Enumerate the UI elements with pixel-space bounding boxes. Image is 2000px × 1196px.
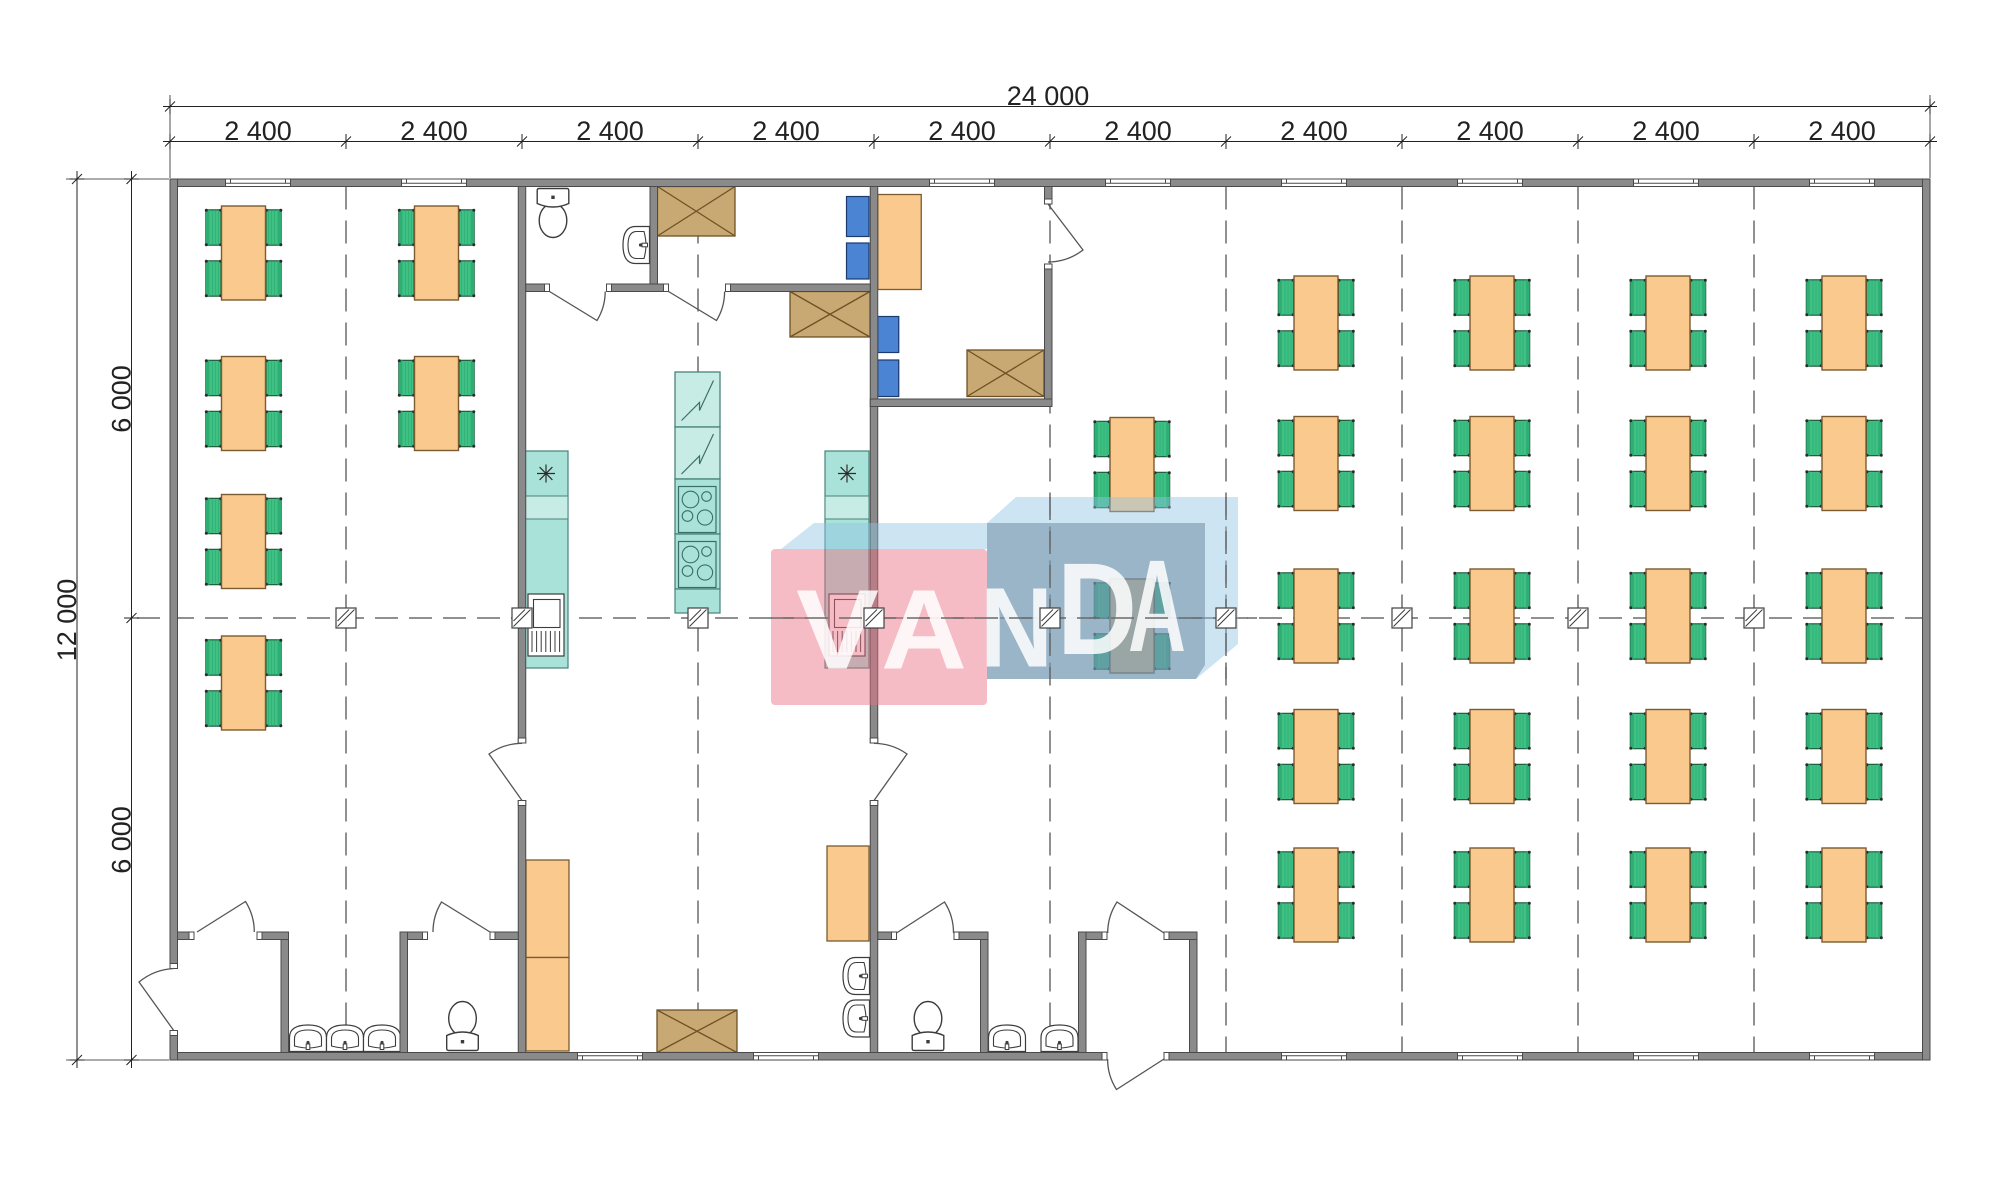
- svg-text:6 000: 6 000: [107, 806, 137, 874]
- svg-text:2 400: 2 400: [1280, 116, 1348, 146]
- svg-text:2 400: 2 400: [1104, 116, 1172, 146]
- svg-text:2 400: 2 400: [1808, 116, 1876, 146]
- svg-text:2 400: 2 400: [1632, 116, 1700, 146]
- svg-text:2 400: 2 400: [752, 116, 820, 146]
- svg-text:12 000: 12 000: [52, 579, 82, 662]
- svg-text:2 400: 2 400: [1456, 116, 1524, 146]
- svg-text:2 400: 2 400: [224, 116, 292, 146]
- svg-text:6 000: 6 000: [107, 365, 137, 433]
- svg-text:D: D: [1057, 535, 1137, 682]
- svg-text:2 400: 2 400: [400, 116, 468, 146]
- svg-text:2 400: 2 400: [576, 116, 644, 146]
- svg-text:V: V: [796, 567, 879, 693]
- svg-text:2 400: 2 400: [928, 116, 996, 146]
- svg-text:24 000: 24 000: [1007, 81, 1090, 111]
- svg-text:A: A: [1128, 532, 1186, 679]
- svg-text:A: A: [881, 567, 967, 693]
